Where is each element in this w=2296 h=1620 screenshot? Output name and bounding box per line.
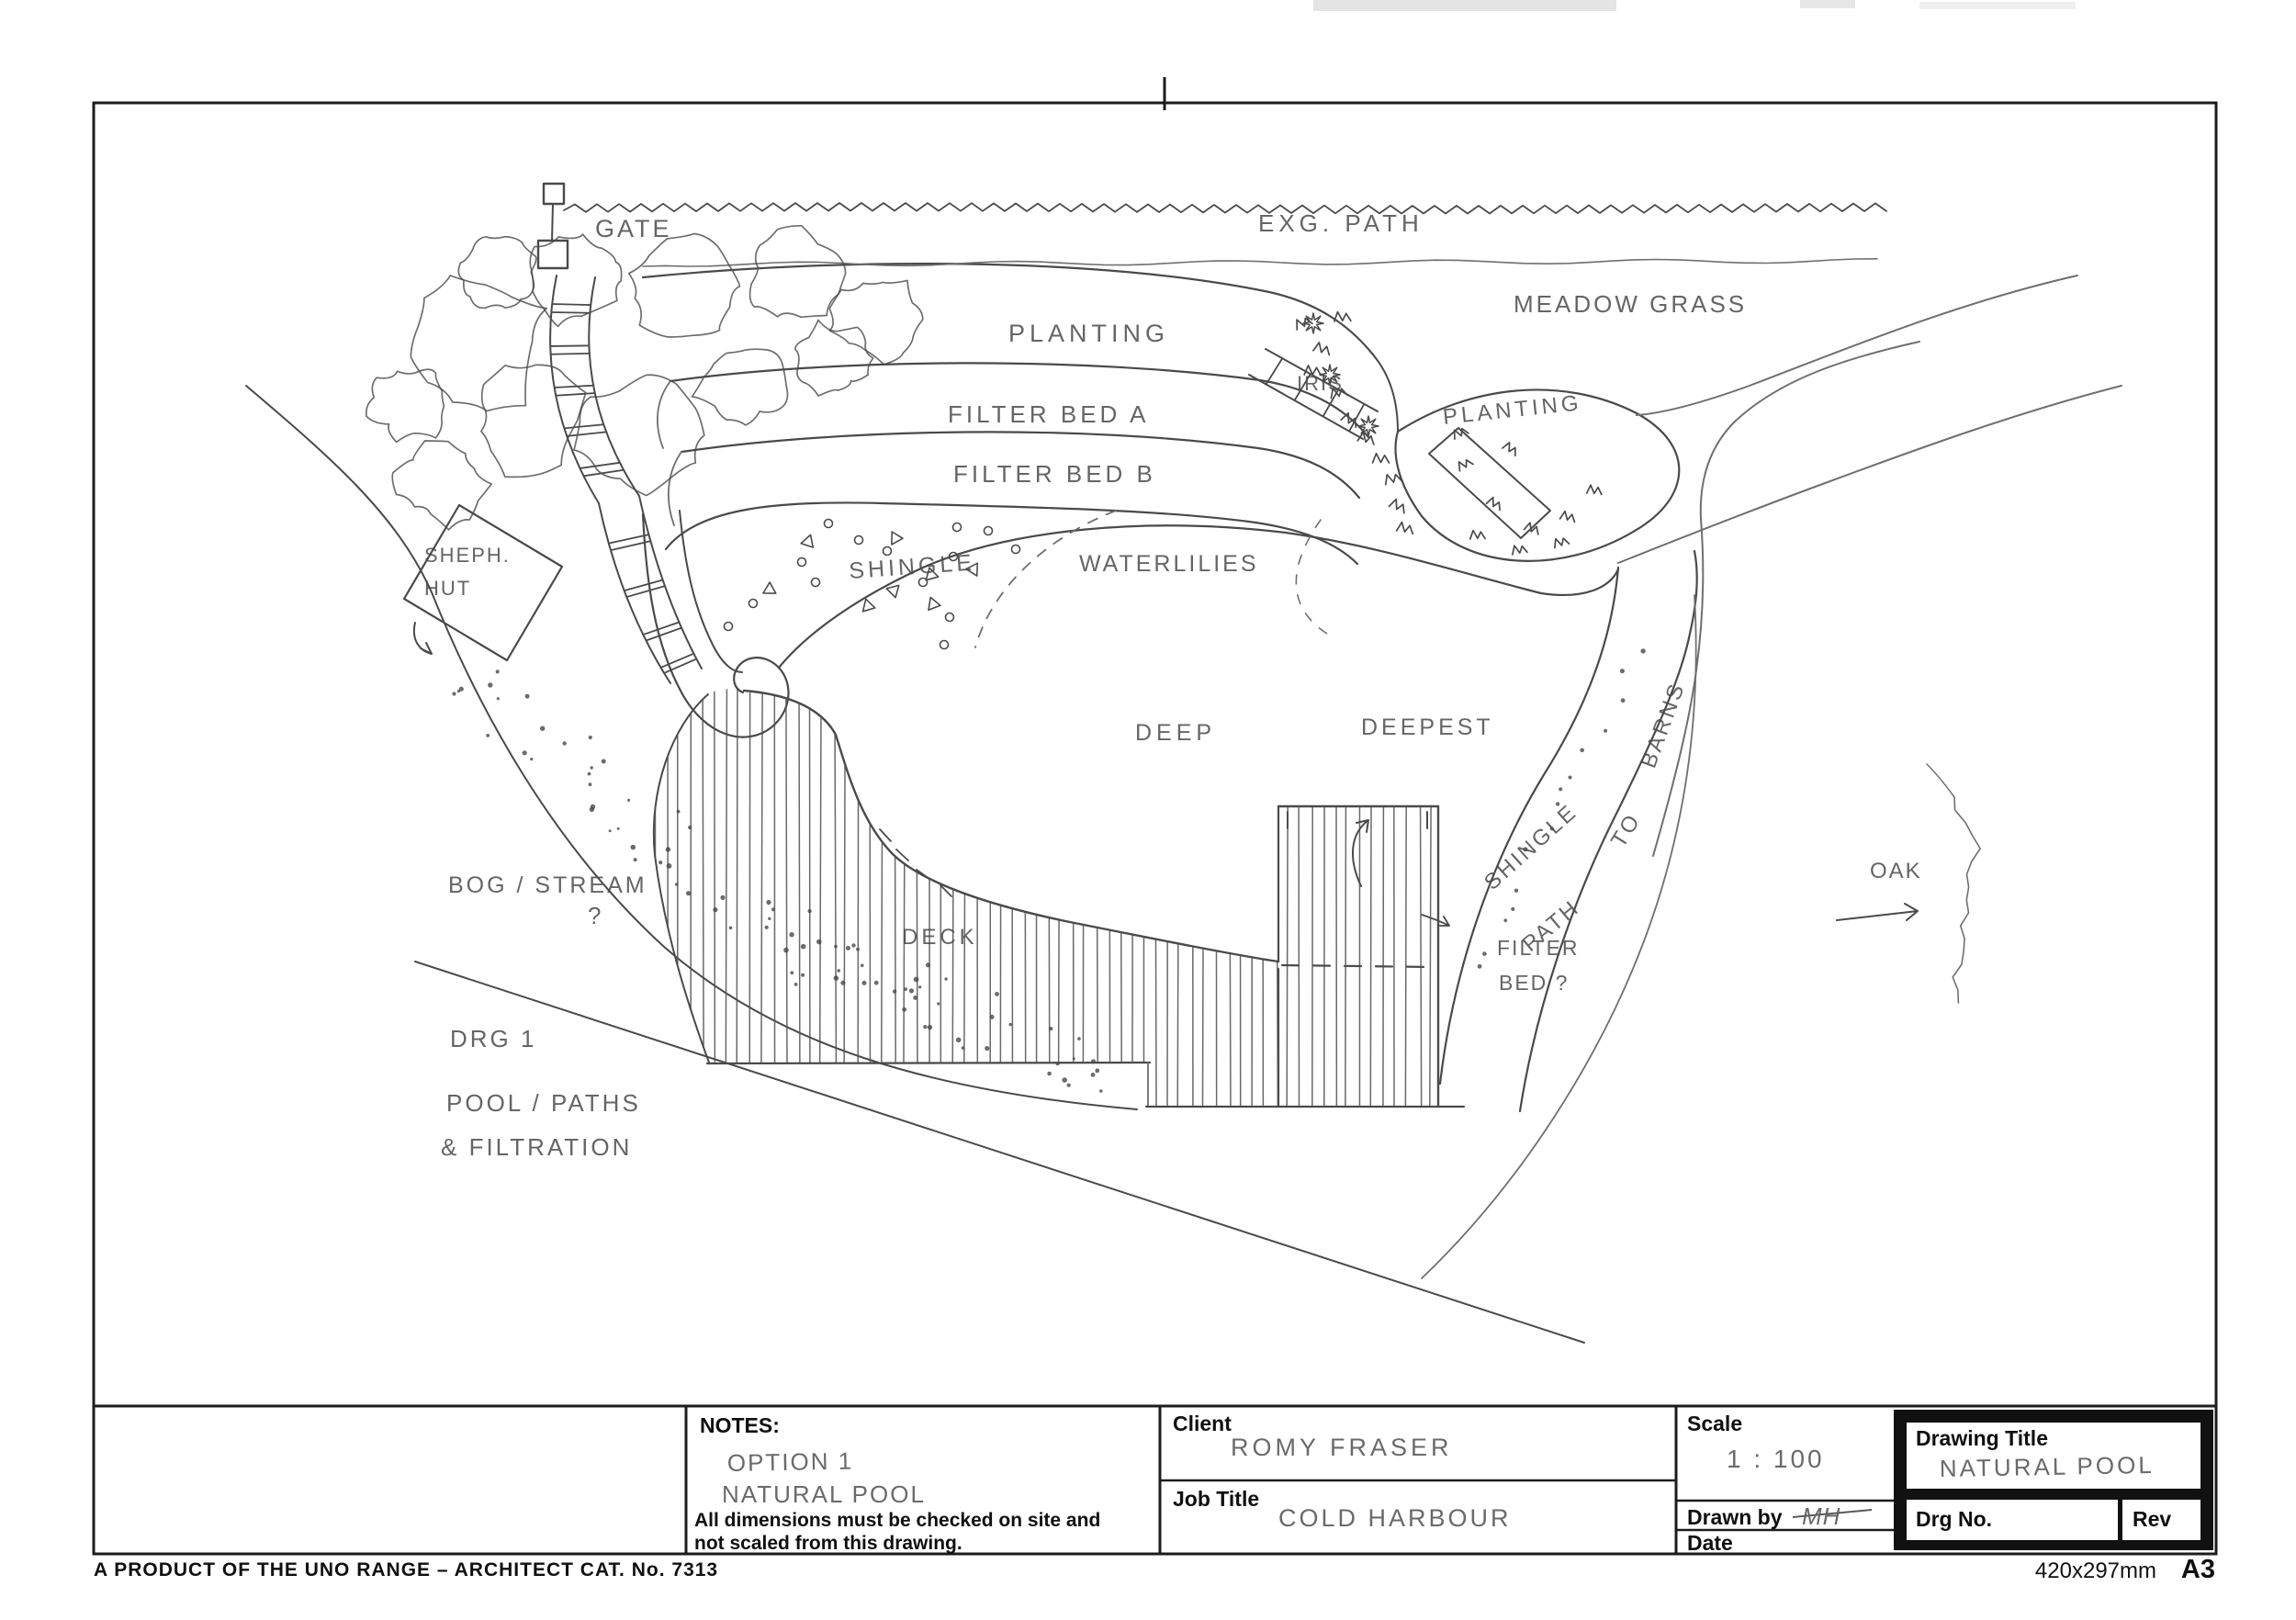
stairs-arc [599,503,670,683]
rev-label: Rev [2133,1507,2171,1531]
paper-format: A3 [2181,1555,2215,1584]
drg-no-label: Drg No. [1916,1507,1992,1531]
gate-post-bottom [538,241,568,268]
label-exg-path: EXG. PATH [1258,209,1424,237]
disclaimer-line-1: All dimensions must be checked on site a… [694,1510,1100,1531]
scan-smudge [1313,0,1616,11]
shingle-scatter [725,520,1020,649]
stairs-arc [550,276,599,503]
label-to: TO [1606,808,1647,851]
oak-arrow [1837,904,1918,920]
label-iris: IRIS [1297,372,1344,395]
deck-edge-ticks [880,829,951,896]
barns-path-inner-edge [1440,568,1618,1084]
label-shingle-path: SHINGLE [1480,799,1582,895]
spiral-inner-edge [680,511,742,672]
label-oak: OAK [1870,859,1922,883]
drawing-title-label: Drawing Title [1916,1426,2048,1450]
pier-note-arrow [1353,820,1368,886]
label-filter-bed-a: FILTER BED A [948,400,1149,428]
bridge-outline [1429,428,1550,538]
label-waterlilies: WATERLILIES [1079,551,1259,577]
job-title-value: COLD HARBOUR [1278,1504,1512,1532]
filter-bed-note-arrow [1422,915,1449,926]
label-planting-right: PLANTING [1442,390,1583,430]
label-shingle-beach: SHINGLE [848,549,975,584]
label-deck: DECK [902,925,978,950]
scale-value: 1 : 100 [1727,1445,1825,1473]
label-pool-paths: POOL / PATHS [446,1089,641,1117]
disclaimer-line-2: not scaled from this drawing. [694,1533,962,1554]
band-left-hook [658,381,670,448]
label-meadow-grass: MEADOW GRASS [1514,290,1747,318]
product-note: A PRODUCT OF THE UNO RANGE – ARCHITECT C… [94,1559,718,1581]
deck-hatching [643,643,1467,1116]
label-drg1: DRG 1 [450,1025,536,1052]
spiral-curl [643,514,788,737]
notes-option: OPTION 1 [727,1447,854,1477]
date-label: Date [1687,1531,1733,1555]
water-top-curve [779,525,1618,668]
barns-path-right-edge [1653,342,1919,856]
gate-leaf [552,204,553,241]
job-title-label: Job Title [1173,1487,1259,1511]
tree-canopy [366,226,923,530]
deck-left-edge [654,694,709,1063]
scale-label: Scale [1687,1412,1742,1435]
steps-rungs [550,304,1364,673]
natural-pool-drawing-sheet: GATE EXG. PATH MEADOW GRASS PLANTING FIL… [0,0,2296,1620]
drawing-title-value: NATURAL POOL [1940,1451,2155,1482]
notes-label: NOTES: [700,1413,780,1437]
field-sweep-curve [1618,386,2122,563]
plan-drawing [246,184,2122,1343]
client-label: Client [1173,1412,1232,1435]
gate-post-top [544,184,564,204]
client-value: ROMY FRASER [1231,1434,1453,1461]
scan-smudge [1919,2,2076,9]
oak-canopy-squiggle [1927,764,1980,1003]
scan-smudge [1800,0,1855,8]
label-filter-q-2: BED ? [1499,971,1569,995]
pool-edge-dashed-under-pier [1282,965,1435,967]
hut-entrance-arrow [414,623,432,654]
fence-line [564,203,1886,214]
label-bog-question: ? [588,902,601,929]
label-sheph-hut-2: HUT [424,577,471,600]
drawn-by-label: Drawn by [1687,1505,1783,1529]
label-gate: GATE [595,215,672,242]
label-deep: DEEP [1135,720,1216,746]
label-bog-stream: BOG / STREAM [448,872,647,898]
label-barns: BARNS [1637,679,1691,771]
label-deepest: DEEPEST [1361,714,1494,740]
label-planting-left: PLANTING [1008,320,1169,347]
label-filtration: & FILTRATION [441,1133,632,1161]
waterlily-dashed-boundary [975,511,1116,647]
band-right-link [1376,358,1398,432]
deck-bottom-edge [707,1063,1150,1063]
title-block: NOTES: OPTION 1 NATURAL POOL All dimensi… [94,1406,2216,1555]
label-sheph-hut-1: SHEPH. [424,544,511,567]
notes-natural-pool: NATURAL POOL [722,1480,926,1508]
label-filter-bed-b: FILTER BED B [953,460,1156,488]
paper-size-note: 420x297mm [2035,1558,2156,1583]
